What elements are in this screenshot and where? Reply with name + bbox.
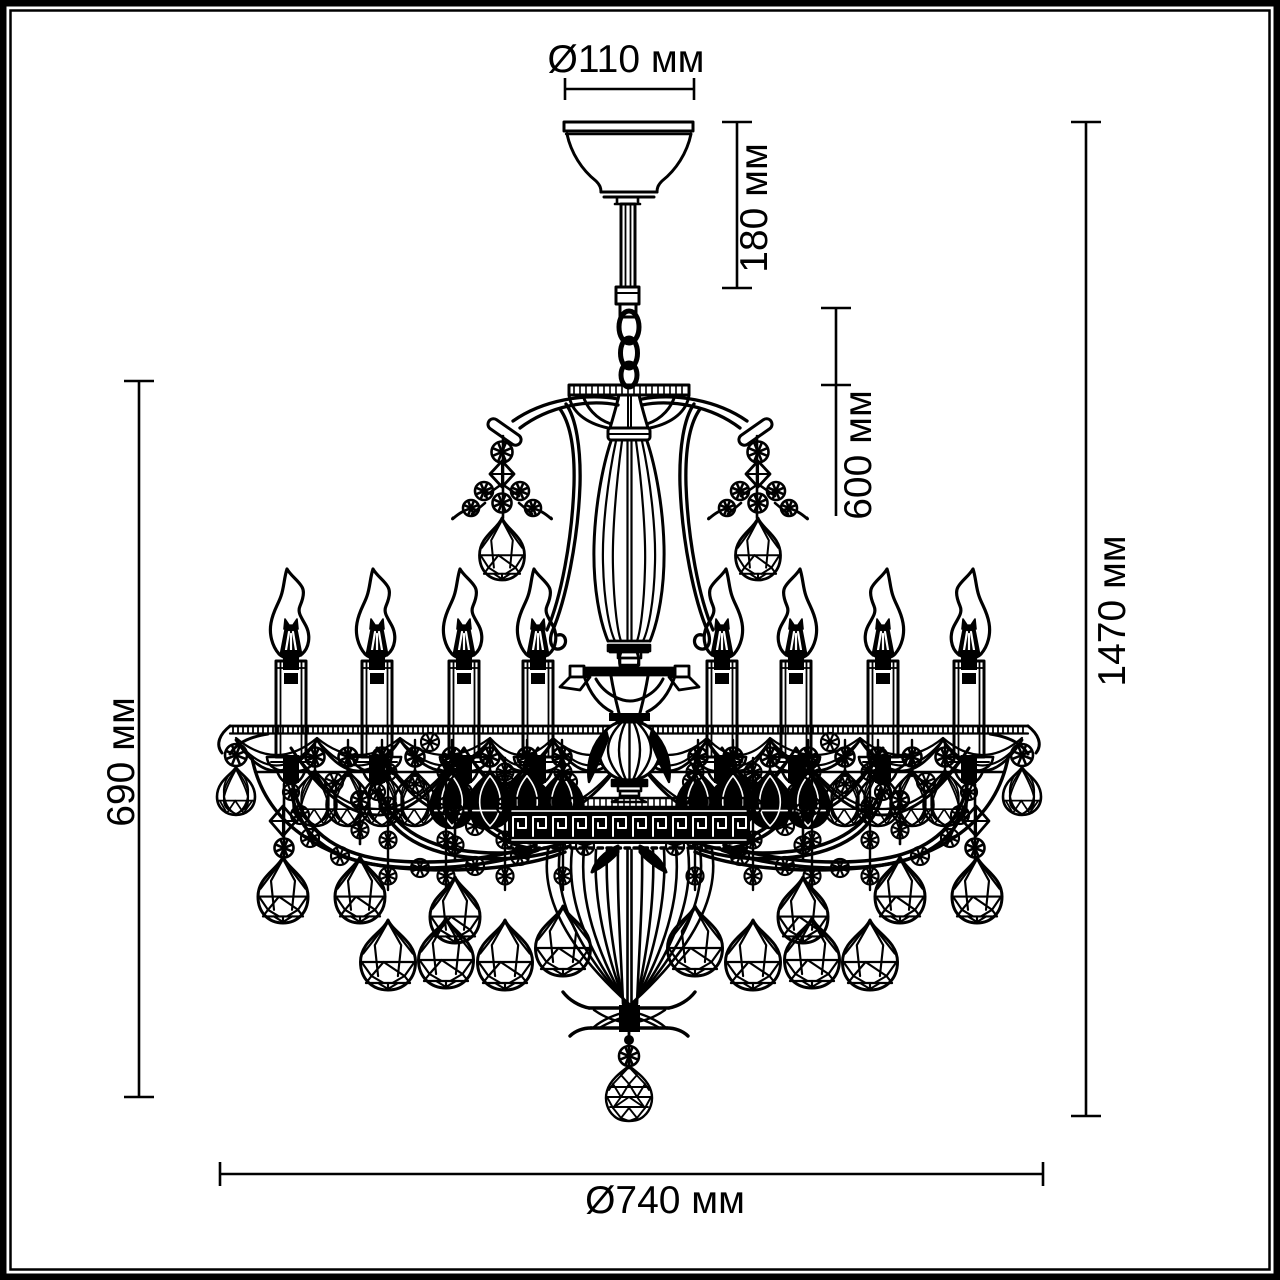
- svg-text:600 мм: 600 мм: [837, 390, 880, 520]
- svg-text:Ø110 мм: Ø110 мм: [548, 38, 705, 81]
- svg-text:Ø740 мм: Ø740 мм: [585, 1179, 745, 1222]
- svg-text:1470 мм: 1470 мм: [1091, 535, 1134, 686]
- svg-text:690 мм: 690 мм: [100, 697, 143, 827]
- svg-text:180 мм: 180 мм: [733, 143, 776, 273]
